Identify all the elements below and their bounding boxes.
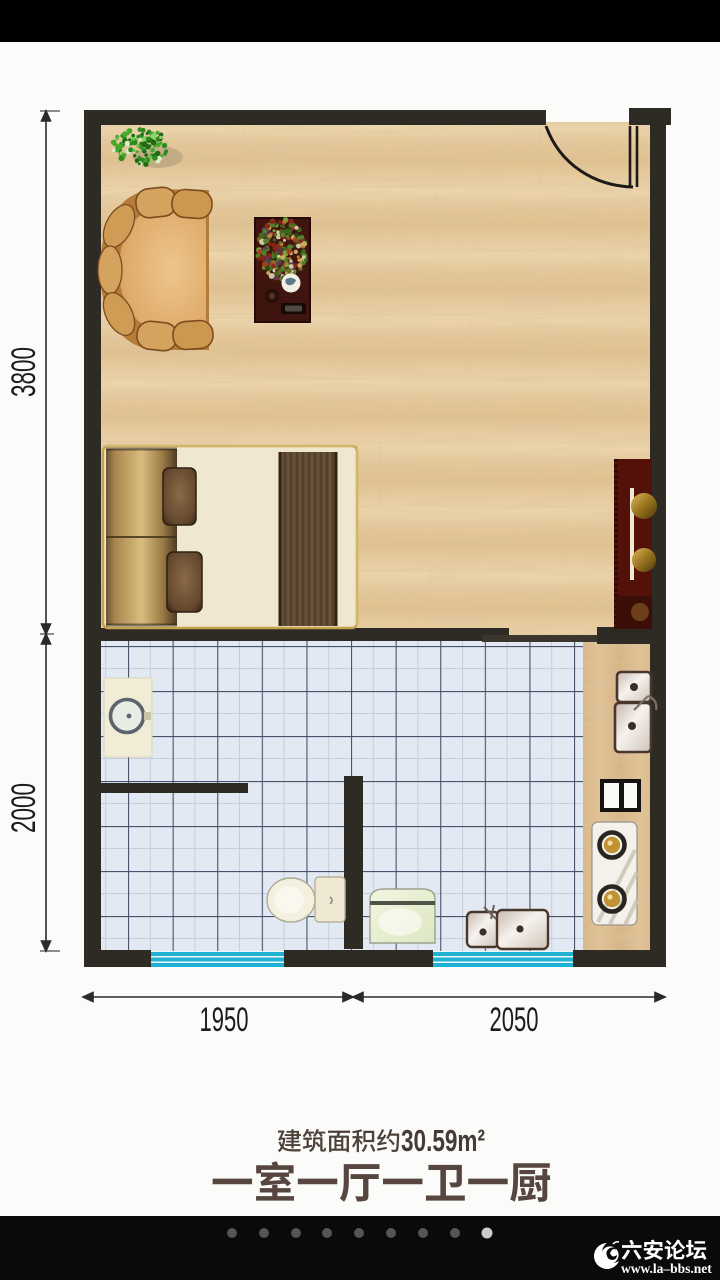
svg-text:30.59m²: 30.59m² xyxy=(401,1123,485,1158)
svg-text:3800: 3800 xyxy=(5,347,43,397)
svg-text:2050: 2050 xyxy=(490,1001,539,1039)
svg-text:www.la–bbs.net: www.la–bbs.net xyxy=(621,1261,712,1276)
svg-text:1950: 1950 xyxy=(200,1001,249,1039)
svg-text:2000: 2000 xyxy=(5,783,43,833)
